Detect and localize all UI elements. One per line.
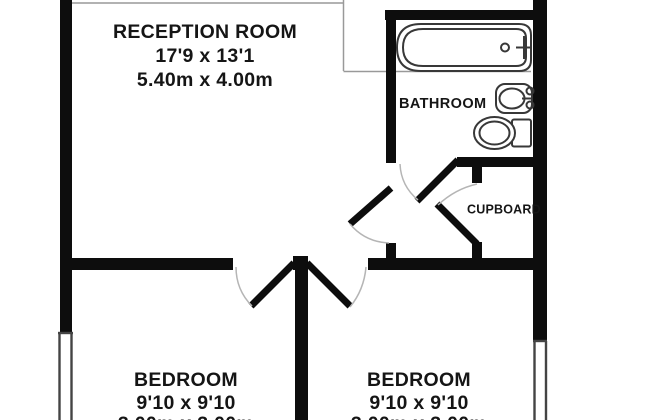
- reception-hall-door: [350, 188, 391, 243]
- door-swing-arc: [350, 267, 366, 307]
- bedroom-left-label: BEDROOM: [134, 369, 238, 391]
- washbasin-icon: [496, 84, 534, 113]
- wall-right-exterior: [533, 0, 547, 340]
- reception-room-size-imperial: 17'9 x 13'1: [155, 45, 254, 67]
- door-swing-arc: [350, 224, 389, 243]
- toilet-icon: [474, 117, 531, 149]
- bathroom-fixtures: [397, 24, 534, 149]
- bedroom-left-size-imperial: 9'10 x 9'10: [136, 392, 235, 414]
- bathroom-door: [400, 160, 458, 201]
- wall-between-bedrooms: [295, 270, 308, 420]
- bathtub-icon: [397, 24, 531, 71]
- wall-bathroom-left: [386, 13, 396, 163]
- wall-bathroom-top: [385, 10, 547, 20]
- floor-plan-canvas: RECEPTION ROOM 17'9 x 13'1 5.40m x 4.00m…: [0, 0, 650, 420]
- bedroom-doors-center-post: [293, 256, 308, 270]
- wall-hall-bottom-right: [368, 258, 547, 270]
- bathtub-rim: [397, 24, 531, 71]
- bedroom-right-size-metric: 3.00m x 3.00m: [351, 413, 487, 420]
- door-swing-arc: [400, 164, 418, 200]
- door-leaf: [307, 263, 350, 306]
- cupboard-label: CUPBOARD: [467, 203, 541, 217]
- bedroom-left-size-metric: 3.00m x 3.00m: [118, 413, 254, 420]
- doors: [236, 160, 477, 307]
- wall-left-exterior: [60, 0, 72, 332]
- labels: RECEPTION ROOM 17'9 x 13'1 5.40m x 4.00m…: [113, 21, 541, 420]
- bedroom-right-label: BEDROOM: [367, 369, 471, 391]
- bathroom-label: BATHROOM: [399, 96, 487, 112]
- left-bedroom-door: [236, 263, 294, 306]
- wall-bathroom-bottom: [457, 157, 547, 167]
- door-swing-arc: [236, 267, 252, 306]
- cupboard-door-top-jamb: [472, 167, 482, 183]
- door-leaf: [350, 188, 391, 224]
- hall-door-bottom-jamb: [386, 243, 396, 260]
- floor-plan: RECEPTION ROOM 17'9 x 13'1 5.40m x 4.00m…: [0, 0, 650, 420]
- door-leaf: [251, 263, 294, 306]
- wall-hall-bottom-left: [60, 258, 233, 270]
- window-left-bedroom: [58, 333, 73, 420]
- window-right-bedroom: [533, 341, 547, 420]
- reception-room-label: RECEPTION ROOM: [113, 21, 297, 43]
- right-bedroom-door: [307, 263, 366, 307]
- reception-room-size-metric: 5.40m x 4.00m: [137, 69, 273, 91]
- bedroom-right-size-imperial: 9'10 x 9'10: [369, 392, 468, 414]
